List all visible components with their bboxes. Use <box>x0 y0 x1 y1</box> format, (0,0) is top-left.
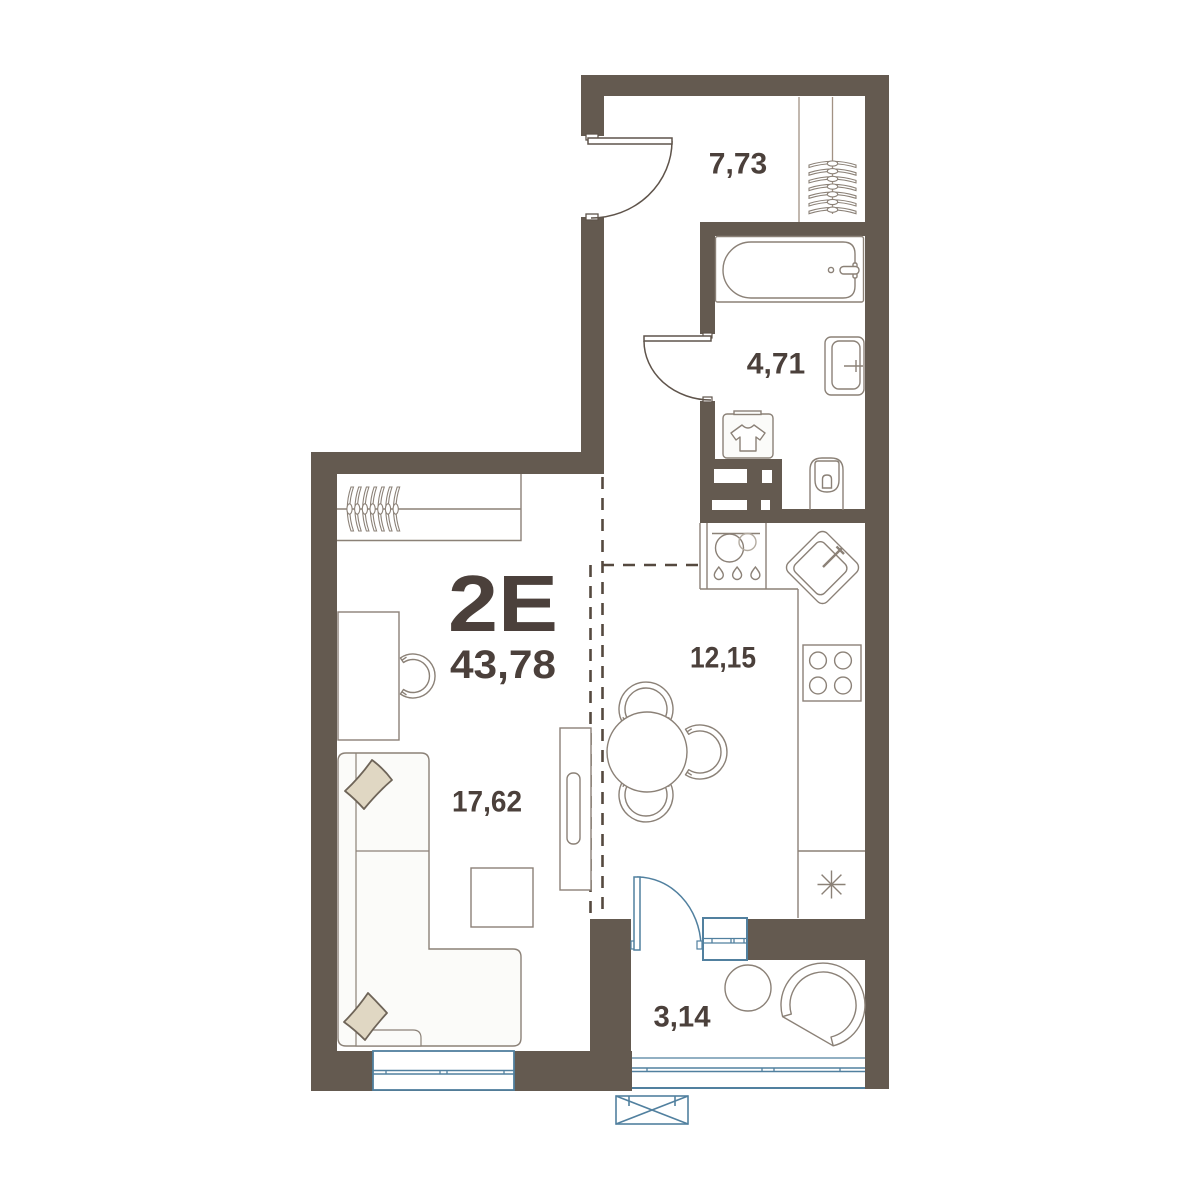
svg-text:2E: 2E <box>448 559 558 648</box>
svg-text:12,15: 12,15 <box>690 642 756 675</box>
svg-text:3,14: 3,14 <box>654 1001 711 1034</box>
svg-text:7,73: 7,73 <box>709 148 767 181</box>
svg-text:17,62: 17,62 <box>452 786 522 819</box>
svg-text:43,78: 43,78 <box>450 643 556 687</box>
svg-text:4,71: 4,71 <box>747 348 805 381</box>
